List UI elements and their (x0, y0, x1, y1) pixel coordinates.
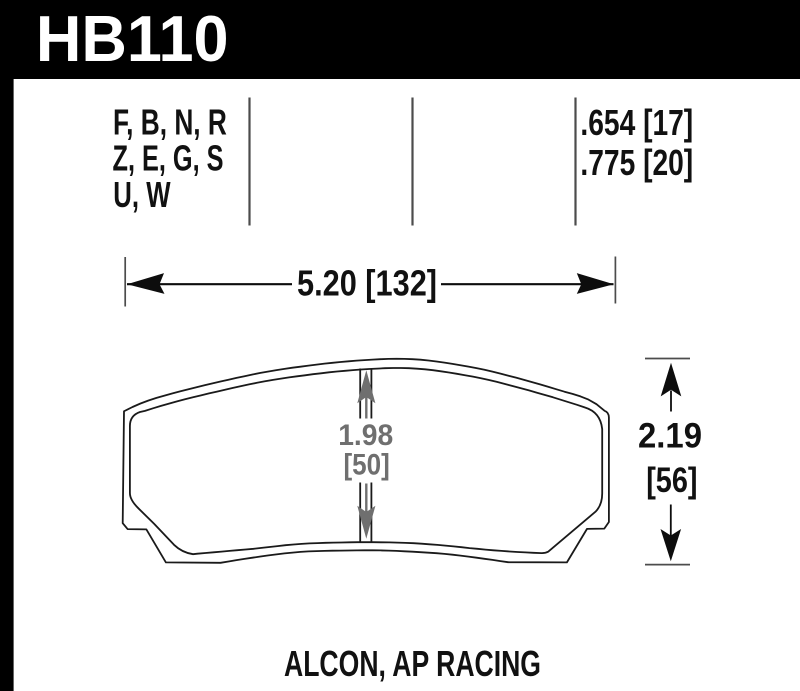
svg-text:ALCON, AP RACING: ALCON, AP RACING (284, 643, 541, 684)
svg-text:1.98: 1.98 (338, 419, 393, 452)
svg-text:[56]: [56] (646, 460, 697, 500)
svg-text:5.20 [132]: 5.20 [132] (297, 262, 437, 303)
svg-text:HB110: HB110 (36, 2, 229, 75)
svg-text:F, B, N, R: F, B, N, R (113, 103, 227, 143)
svg-text:.775 [20]: .775 [20] (580, 143, 693, 183)
svg-text:.654 [17]: .654 [17] (580, 103, 693, 143)
svg-text:2.19: 2.19 (638, 415, 702, 455)
svg-text:[50]: [50] (344, 449, 390, 482)
svg-text:Z, E, G, S: Z, E, G, S (113, 139, 224, 179)
svg-text:U, W: U, W (113, 175, 170, 215)
